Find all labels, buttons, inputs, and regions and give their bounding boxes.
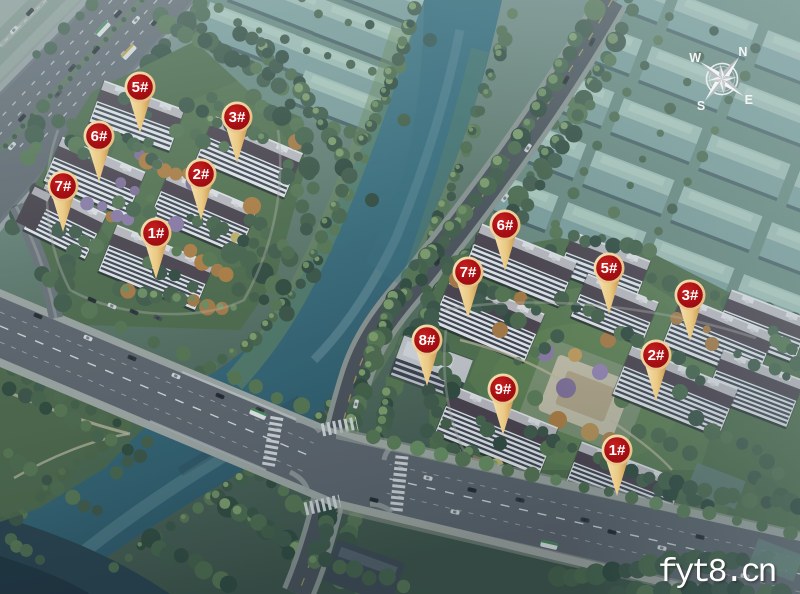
svg-text:2#: 2# (648, 347, 665, 364)
svg-text:W: W (689, 51, 701, 65)
svg-text:5#: 5# (601, 260, 618, 277)
svg-text:fyt8.cn: fyt8.cn (658, 554, 775, 591)
svg-text:N: N (738, 45, 747, 59)
svg-text:E: E (745, 93, 753, 107)
svg-text:1#: 1# (148, 225, 165, 242)
svg-text:S: S (697, 99, 705, 113)
svg-text:3#: 3# (682, 287, 699, 304)
svg-text:5#: 5# (132, 79, 149, 96)
svg-text:7#: 7# (460, 264, 477, 281)
svg-text:9#: 9# (495, 381, 512, 398)
svg-text:6#: 6# (497, 217, 514, 234)
svg-text:6#: 6# (91, 128, 108, 145)
svg-text:8#: 8# (419, 332, 436, 349)
svg-text:1#: 1# (609, 442, 626, 459)
svg-text:3#: 3# (229, 109, 246, 126)
svg-text:2#: 2# (193, 166, 210, 183)
svg-text:7#: 7# (55, 178, 72, 195)
